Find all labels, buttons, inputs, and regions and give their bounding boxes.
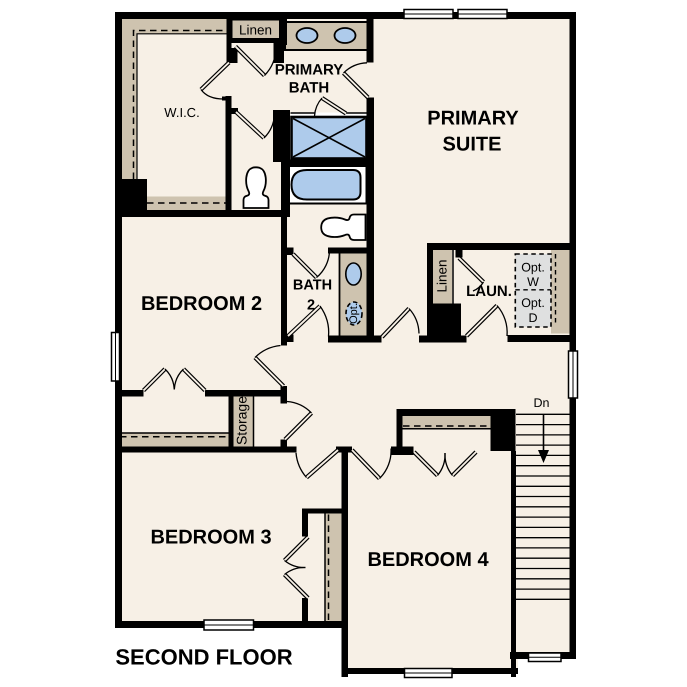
svg-text:SECOND FLOOR: SECOND FLOOR — [115, 645, 292, 670]
svg-text:Linen: Linen — [435, 259, 450, 292]
svg-text:Opt.: Opt. — [521, 296, 545, 310]
svg-text:BEDROOM 3: BEDROOM 3 — [150, 527, 271, 549]
svg-text:BEDROOM 4: BEDROOM 4 — [367, 549, 489, 571]
svg-text:Dn: Dn — [534, 396, 550, 410]
svg-text:Storage: Storage — [234, 396, 250, 445]
svg-text:BATH: BATH — [289, 80, 330, 97]
svg-text:SUITE: SUITE — [443, 134, 502, 156]
svg-text:Opt.: Opt. — [521, 261, 545, 275]
svg-text:Opt.: Opt. — [348, 303, 360, 324]
svg-text:2: 2 — [307, 298, 315, 314]
svg-text:W.I.C.: W.I.C. — [164, 105, 199, 120]
svg-text:PRIMARY: PRIMARY — [275, 62, 344, 79]
svg-text:W: W — [527, 275, 539, 289]
svg-text:PRIMARY: PRIMARY — [427, 108, 519, 130]
svg-text:D: D — [528, 311, 537, 325]
svg-text:BEDROOM 2: BEDROOM 2 — [141, 293, 262, 315]
svg-text:LAUN.: LAUN. — [466, 283, 512, 300]
svg-text:Linen: Linen — [239, 23, 272, 38]
svg-text:BATH: BATH — [293, 278, 332, 294]
